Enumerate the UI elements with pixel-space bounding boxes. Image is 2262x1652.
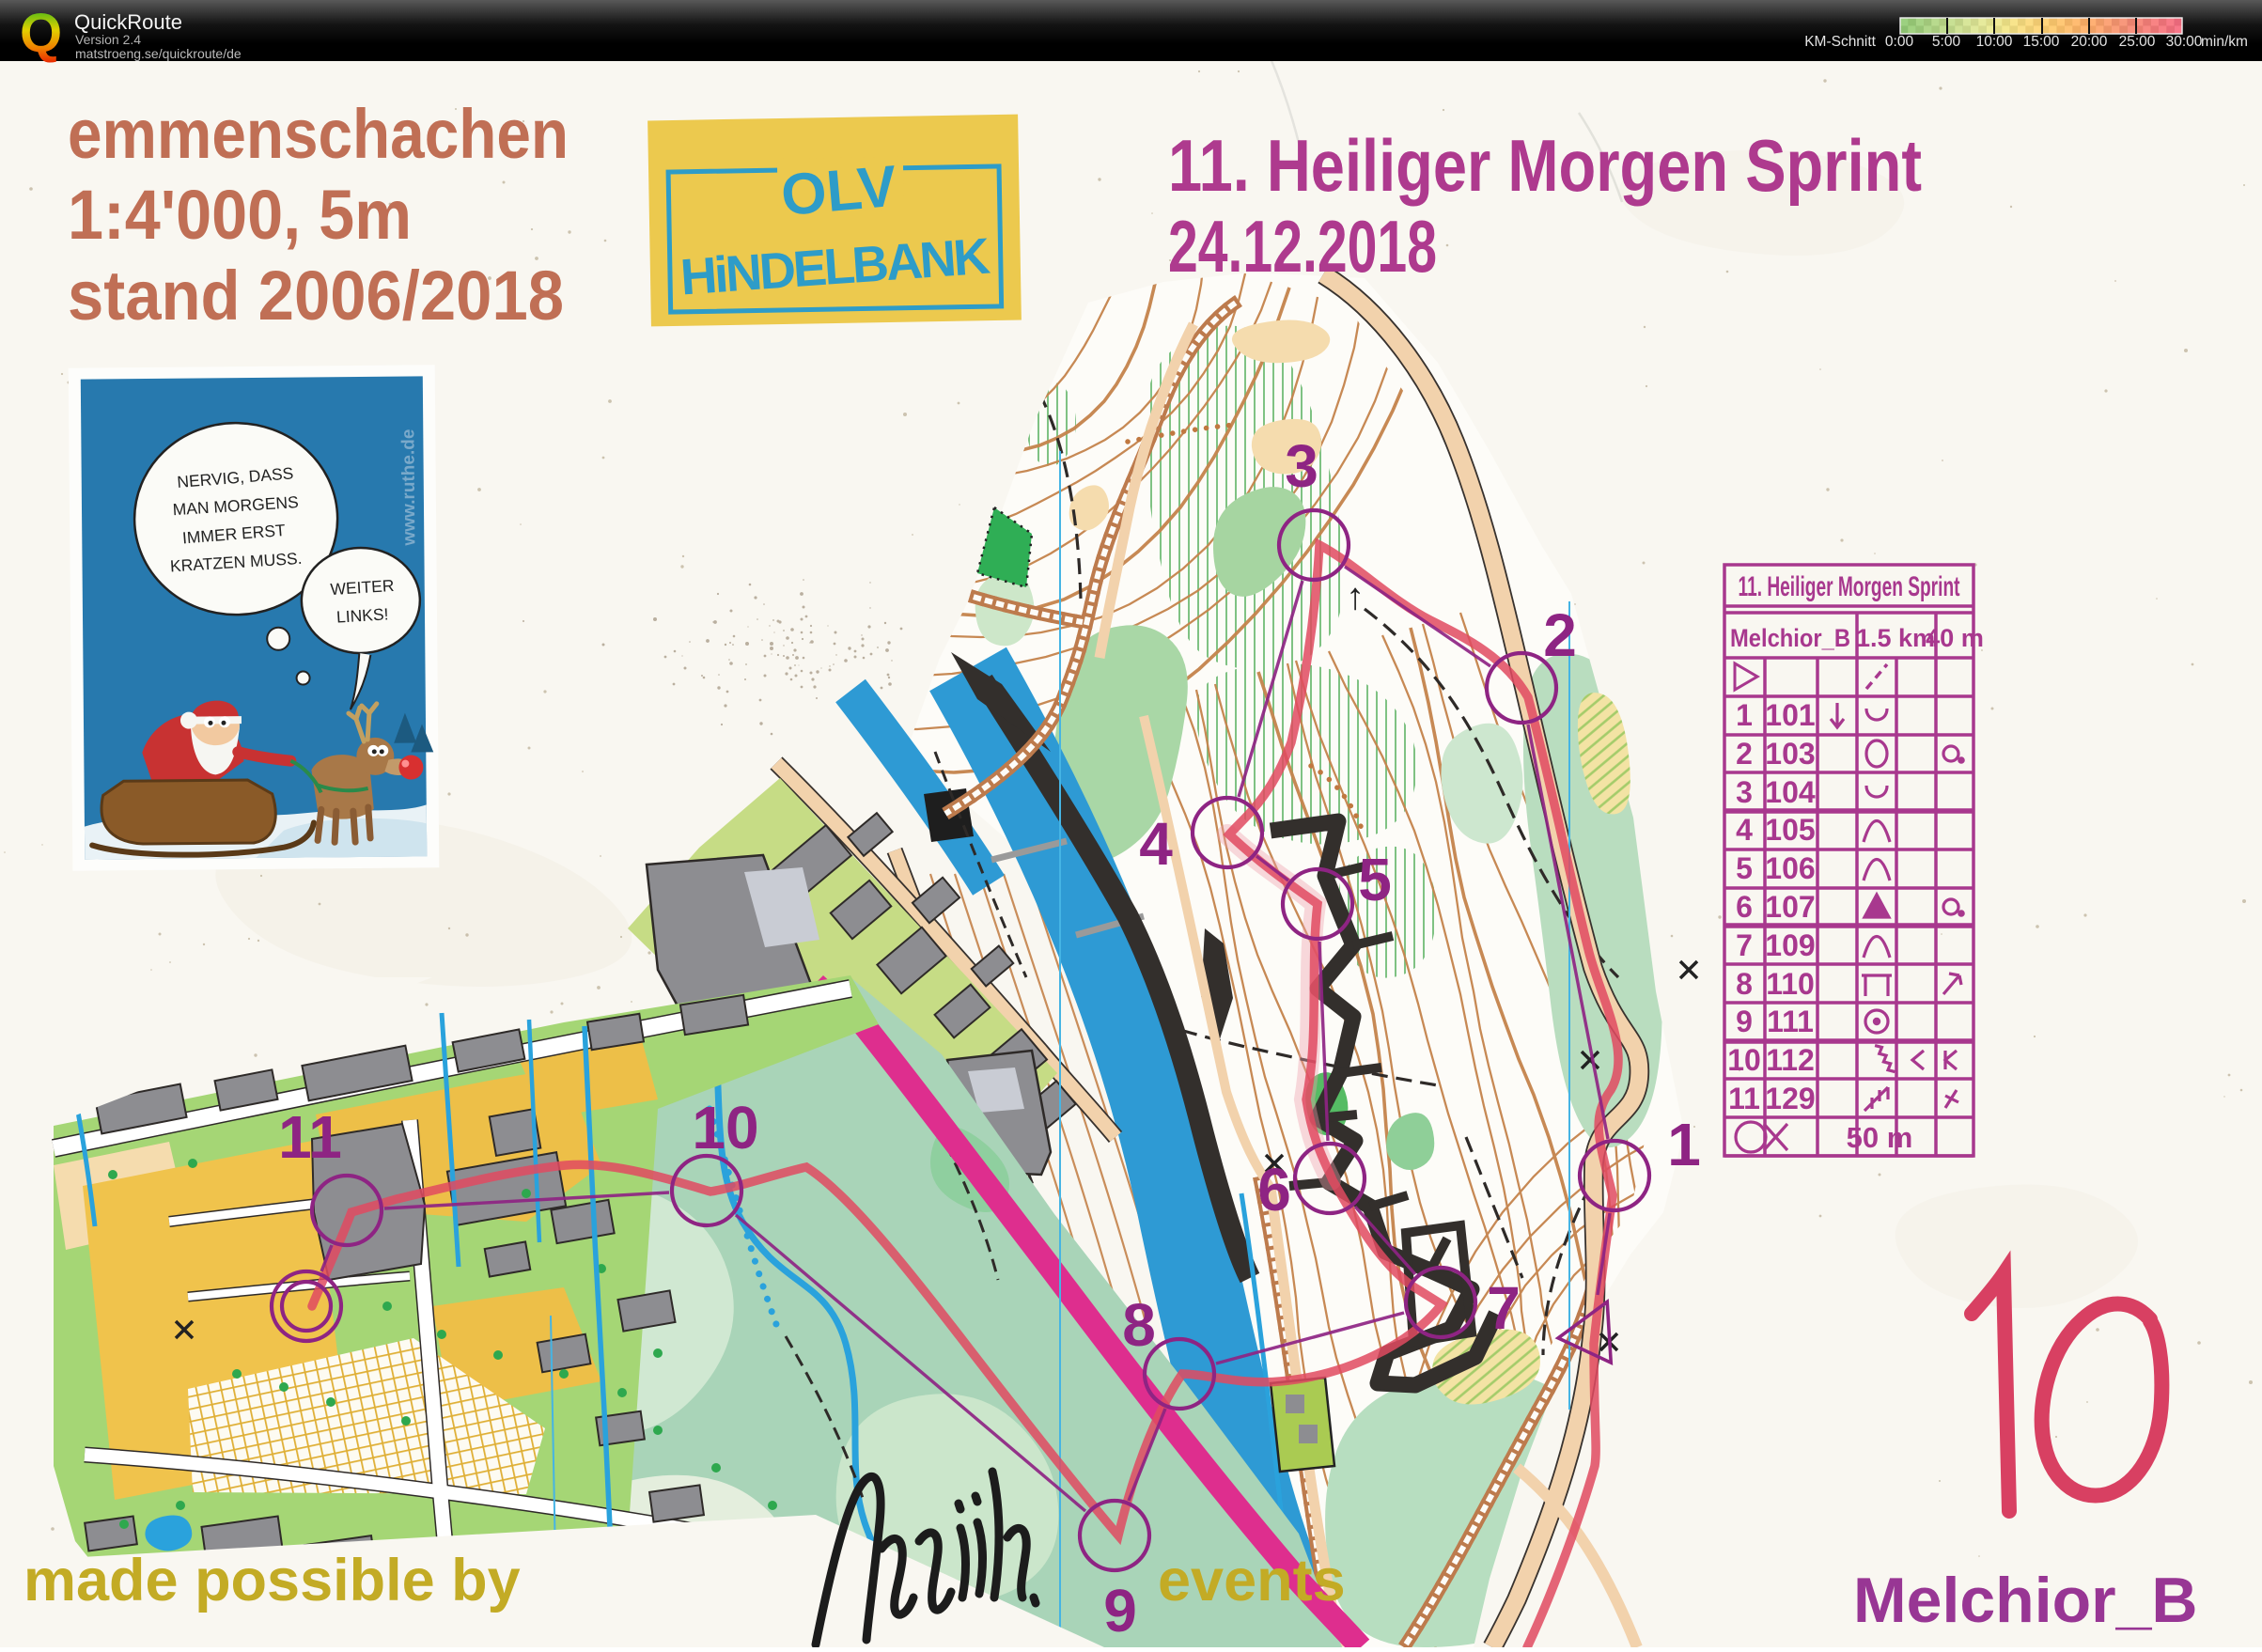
svg-text:8: 8 [1122, 1291, 1156, 1359]
svg-text:6: 6 [1736, 890, 1753, 924]
svg-text:129: 129 [1765, 1082, 1815, 1115]
svg-text:4: 4 [1139, 810, 1173, 878]
svg-text:111: 111 [1767, 1005, 1814, 1038]
svg-text:stand 2006/2018: stand 2006/2018 [68, 257, 564, 335]
svg-text:40 m: 40 m [1926, 624, 1984, 652]
svg-text:made possible by: made possible by [23, 1548, 521, 1613]
svg-text:24.12.2018: 24.12.2018 [1168, 205, 1437, 288]
svg-text:Version 2.4: Version 2.4 [75, 32, 141, 47]
svg-text:11: 11 [1728, 1082, 1760, 1115]
svg-text:↑: ↑ [1346, 576, 1365, 617]
svg-text:1: 1 [1667, 1111, 1701, 1178]
svg-text:5: 5 [1736, 851, 1753, 885]
svg-text:0:00: 0:00 [1885, 34, 1914, 50]
svg-text:106: 106 [1765, 851, 1815, 885]
svg-text:10:00: 10:00 [1976, 34, 2013, 50]
svg-text:104: 104 [1765, 775, 1816, 809]
svg-text:7: 7 [1736, 928, 1753, 962]
svg-text:5:00: 5:00 [1932, 34, 1961, 50]
svg-text:4: 4 [1736, 813, 1753, 847]
svg-text:Q: Q [20, 3, 62, 64]
svg-text:105: 105 [1765, 813, 1815, 847]
svg-text:www.ruthe.de: www.ruthe.de [398, 429, 419, 547]
svg-text:25:00: 25:00 [2119, 34, 2156, 50]
svg-text:1.5 km: 1.5 km [1856, 624, 1935, 652]
svg-text:7: 7 [1487, 1274, 1521, 1342]
svg-text:9: 9 [1736, 1005, 1753, 1038]
svg-text:109: 109 [1765, 928, 1815, 962]
svg-text:LINKS!: LINKS! [335, 604, 389, 626]
svg-text:103: 103 [1765, 737, 1815, 771]
svg-text:112: 112 [1766, 1043, 1815, 1077]
svg-text:8: 8 [1736, 967, 1753, 1001]
svg-text:101: 101 [1765, 698, 1815, 732]
svg-text:2: 2 [1736, 737, 1753, 771]
svg-text:11: 11 [278, 1103, 342, 1171]
svg-text:3: 3 [1736, 775, 1753, 809]
svg-text:matstroeng.se/quickroute/de: matstroeng.se/quickroute/de [75, 46, 242, 61]
svg-text:Melchior_B: Melchior_B [1853, 1565, 2198, 1636]
svg-text:6: 6 [1257, 1156, 1291, 1223]
svg-text:emmenschachen: emmenschachen [68, 95, 569, 173]
svg-text:9: 9 [1103, 1577, 1137, 1644]
svg-text:30:00: 30:00 [2166, 34, 2203, 50]
svg-text:Melchior_B: Melchior_B [1730, 624, 1850, 652]
svg-text:110: 110 [1766, 967, 1815, 1001]
svg-text:20:00: 20:00 [2071, 34, 2108, 50]
svg-text:1:4'000, 5m: 1:4'000, 5m [68, 176, 412, 254]
svg-text:50 m: 50 m [1847, 1121, 1913, 1154]
svg-text:2: 2 [1543, 601, 1577, 669]
svg-text:QuickRoute: QuickRoute [74, 10, 182, 34]
svg-text:15:00: 15:00 [2023, 34, 2060, 50]
svg-text:5: 5 [1358, 846, 1392, 913]
svg-text:1: 1 [1736, 698, 1753, 732]
svg-text:10: 10 [692, 1094, 758, 1161]
svg-text:WEITER: WEITER [330, 576, 395, 599]
svg-text:107: 107 [1765, 890, 1815, 924]
svg-text:KM-Schnitt: KM-Schnitt [1804, 34, 1876, 50]
svg-text:min/km: min/km [2201, 34, 2248, 50]
svg-text:3: 3 [1285, 432, 1318, 500]
svg-text:11. Heiliger Morgen Sprint: 11. Heiliger Morgen Sprint [1739, 571, 1960, 602]
svg-text:events: events [1158, 1548, 1346, 1613]
svg-text:OLV: OLV [779, 154, 899, 228]
svg-text:11. Heiliger Morgen Sprint: 11. Heiliger Morgen Sprint [1168, 124, 1922, 207]
svg-text:10: 10 [1727, 1043, 1761, 1077]
